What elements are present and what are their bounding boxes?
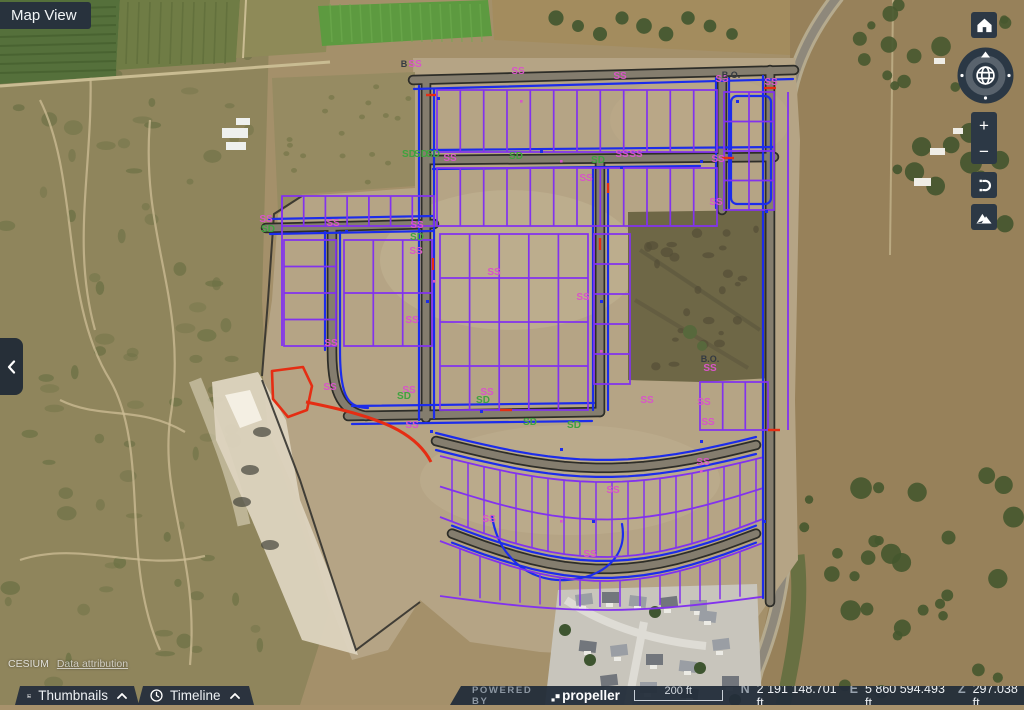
- utility-label-sd: SD: [523, 417, 537, 428]
- utility-label-ss: SS: [629, 149, 643, 160]
- utility-label-ss: SS: [443, 153, 457, 164]
- status-bar: POWERED BY propeller 200 ft N2 191 148.7…: [450, 686, 1024, 705]
- utility-label-ss: SS: [576, 292, 590, 303]
- utility-label-ss: SS: [697, 397, 711, 408]
- reset-orientation-icon: [976, 177, 993, 194]
- satellite-map: BSSSSSSSSB.O.SSSDSDSDSSSDSDSSSSSSSSSSSSS…: [0, 0, 1024, 705]
- utility-label-ss: SS: [409, 246, 423, 257]
- utility-label-ss: SS: [324, 338, 338, 349]
- propeller-logo-icon: [551, 692, 560, 703]
- terrain-layers-button[interactable]: [971, 204, 997, 230]
- map-canvas[interactable]: BSSSSSSSSB.O.SSSDSDSDSSSDSDSSSSSSSSSSSSS…: [0, 0, 1024, 705]
- utility-label-ss: SS: [764, 77, 778, 88]
- compass-control[interactable]: [957, 47, 1014, 104]
- utility-label-ss: SS: [606, 485, 620, 496]
- zoom-in-button[interactable]: +: [971, 112, 997, 138]
- utility-label-sd: SD: [426, 149, 440, 160]
- utility-label-ss: SS: [583, 549, 597, 560]
- utility-label-sd: SD: [397, 391, 411, 402]
- utility-label-ss: SS: [405, 420, 419, 431]
- utility-label-ss: SS: [410, 220, 424, 231]
- utility-label-ss: SS: [711, 154, 725, 165]
- utility-label-ss: SS: [613, 71, 627, 82]
- brand-text: propeller: [562, 688, 620, 703]
- utility-label-ss: SS: [408, 59, 422, 70]
- chevron-left-icon: [7, 360, 16, 374]
- utility-label-sd: SD: [567, 420, 581, 431]
- utility-label-sd: SD: [591, 155, 605, 166]
- utility-label-sd: SD: [509, 151, 523, 162]
- utility-label-bo: B.O.: [722, 70, 741, 80]
- utility-label-ss: SS: [511, 66, 525, 77]
- utility-label-ss: SS: [701, 417, 715, 428]
- utility-label-ss: SS: [323, 382, 337, 393]
- map-scale-bar: 200 ft: [634, 690, 723, 701]
- chevron-up-icon: [230, 693, 240, 699]
- utility-label-ss: SS: [696, 457, 710, 468]
- propeller-brand: propeller: [551, 688, 620, 703]
- cesium-credit: CESIUM: [8, 658, 49, 670]
- utility-label-ss: SS: [709, 197, 723, 208]
- collapse-panel-button[interactable]: [0, 338, 23, 395]
- utility-label-ss: SS: [640, 395, 654, 406]
- chevron-up-icon: [117, 693, 127, 699]
- utility-label-sd: SD: [410, 232, 424, 243]
- powered-by: POWERED BY propeller: [472, 685, 620, 707]
- utility-label-ss: SS: [326, 218, 340, 229]
- terrain-icon: [975, 210, 993, 225]
- utility-label-sd: SD: [476, 395, 490, 406]
- utility-label-ss: SS: [482, 514, 496, 525]
- map-view-label: Map View: [0, 2, 91, 29]
- zoom-out-button[interactable]: −: [971, 138, 997, 164]
- utility-label-ss: SS: [615, 149, 629, 160]
- scale-label: 200 ft: [635, 685, 722, 697]
- home-button[interactable]: [971, 12, 997, 38]
- home-icon: [976, 17, 993, 33]
- clock-icon: [150, 689, 163, 702]
- timeline-label: Timeline: [170, 688, 221, 703]
- zoom-controls: + −: [971, 112, 997, 164]
- timeline-tab[interactable]: Timeline: [138, 686, 254, 705]
- thumbnails-tab[interactable]: Thumbnails: [15, 686, 139, 705]
- utility-label-ss: SS: [405, 315, 419, 326]
- image-icon: [27, 690, 31, 702]
- thumbnails-label: Thumbnails: [38, 688, 108, 703]
- data-attribution-link[interactable]: Data attribution: [57, 658, 128, 670]
- utility-label-sd: SD: [261, 224, 275, 235]
- utility-label-ss: SS: [487, 267, 501, 278]
- powered-by-label: POWERED BY: [472, 685, 544, 707]
- reset-orientation-button[interactable]: [971, 172, 997, 198]
- map-view-text: Map View: [11, 7, 77, 24]
- map-attribution: CESIUM Data attribution: [8, 658, 128, 670]
- utility-label-ss: SS: [703, 363, 717, 374]
- utility-label-bo: B: [401, 59, 408, 69]
- utility-label-ss: SS: [579, 173, 593, 184]
